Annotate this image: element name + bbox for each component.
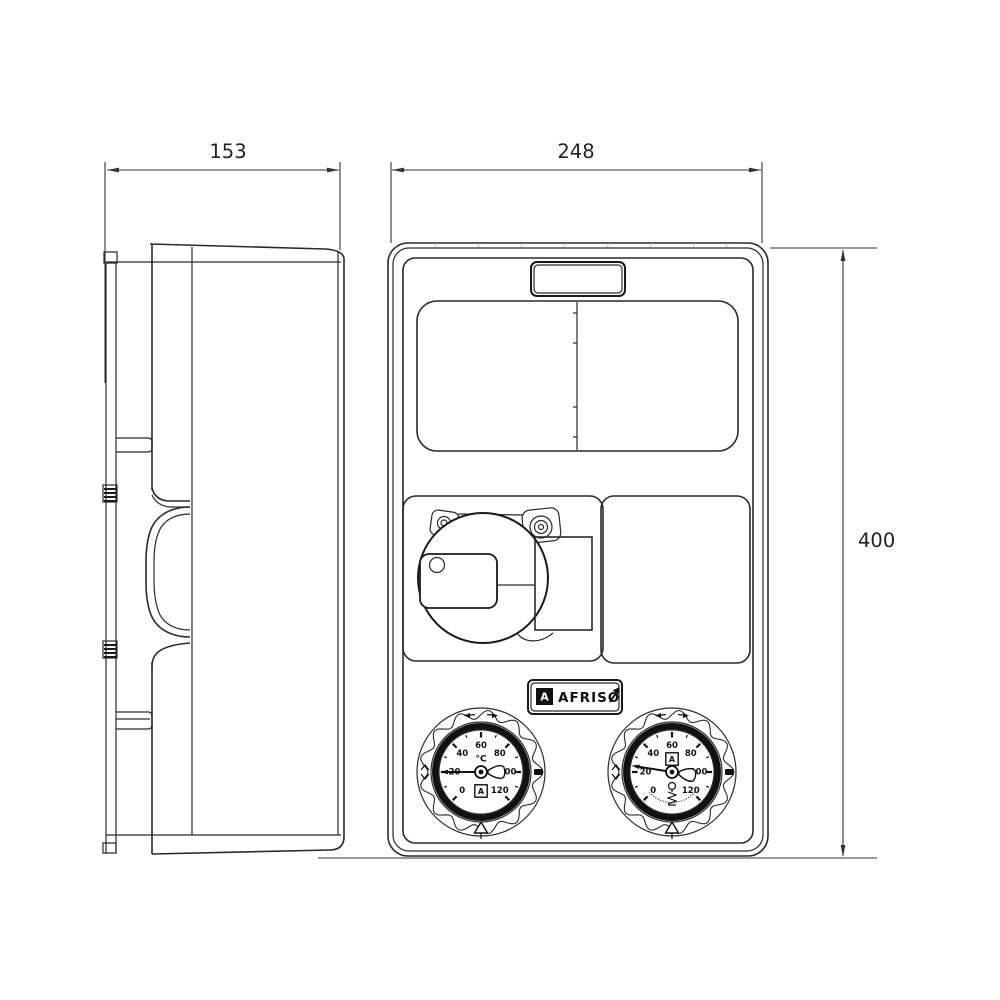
handle-recess-inner (154, 514, 190, 630)
afriso-logo-text: AFRISO (558, 690, 620, 706)
gauge-scale-label: 60 (666, 741, 678, 751)
side-housing-profile (106, 244, 344, 854)
thermometer-gauge-supply: 020406080100120°CA (417, 708, 545, 839)
front-view: A AFRISO 020406080100120°CA 020406080100… (388, 243, 768, 856)
mounting-strip (103, 252, 152, 853)
valve-cover-panel (601, 496, 750, 663)
pump-terminal-box (420, 554, 497, 608)
bracket-bar-upper (116, 438, 152, 452)
gauge-scale-label: 120 (491, 786, 509, 796)
upper-cover-doors (417, 301, 738, 451)
technical-drawing-canvas: 153 248 400 (0, 0, 1000, 1000)
dimension-front-width: 248 (391, 140, 762, 243)
gauge-scale-label: 0 (459, 786, 465, 796)
gauge-brand-letter: A (478, 787, 485, 796)
bracket-bar-lower (116, 712, 152, 729)
mounting-clip-upper (103, 485, 117, 502)
pump-recess (403, 496, 750, 663)
technical-drawing-page: 153 248 400 (0, 0, 1000, 1000)
arrowhead-down (841, 845, 846, 857)
gauge-scale-label: 80 (685, 749, 697, 759)
arrowhead-up (841, 249, 846, 261)
thermometer-gauge-return: 020406080100120A (608, 708, 736, 839)
gauge-brand-letter: A (669, 755, 676, 764)
dimension-label-height: 400 (858, 529, 895, 552)
gauge-scale-label: 40 (647, 749, 659, 759)
gauge-scale-label: 120 (682, 786, 700, 796)
arrowhead-left (392, 168, 404, 173)
afriso-logo-plate: A AFRISO (528, 680, 622, 714)
arrowhead-right (327, 168, 339, 173)
dimension-label-side-width: 153 (209, 140, 246, 163)
dimension-label-front-width: 248 (557, 140, 594, 163)
side-view (103, 244, 344, 854)
afriso-mark-letter: A (540, 691, 549, 704)
circulation-pump (418, 507, 592, 643)
handle-recess-outer (146, 507, 190, 637)
gauge-scale-label: 60 (475, 741, 487, 751)
gauge-scale-label: 40 (456, 749, 468, 759)
top-label-window (531, 262, 625, 296)
dimension-height: 400 (318, 248, 895, 858)
gauge-unit-label: °C (475, 755, 487, 765)
arrowhead-left (107, 168, 119, 173)
arrowhead-right (749, 168, 761, 173)
mounting-clip-lower (103, 641, 117, 658)
gauge-scale-label: 80 (494, 749, 506, 759)
pump-foot (517, 633, 553, 641)
